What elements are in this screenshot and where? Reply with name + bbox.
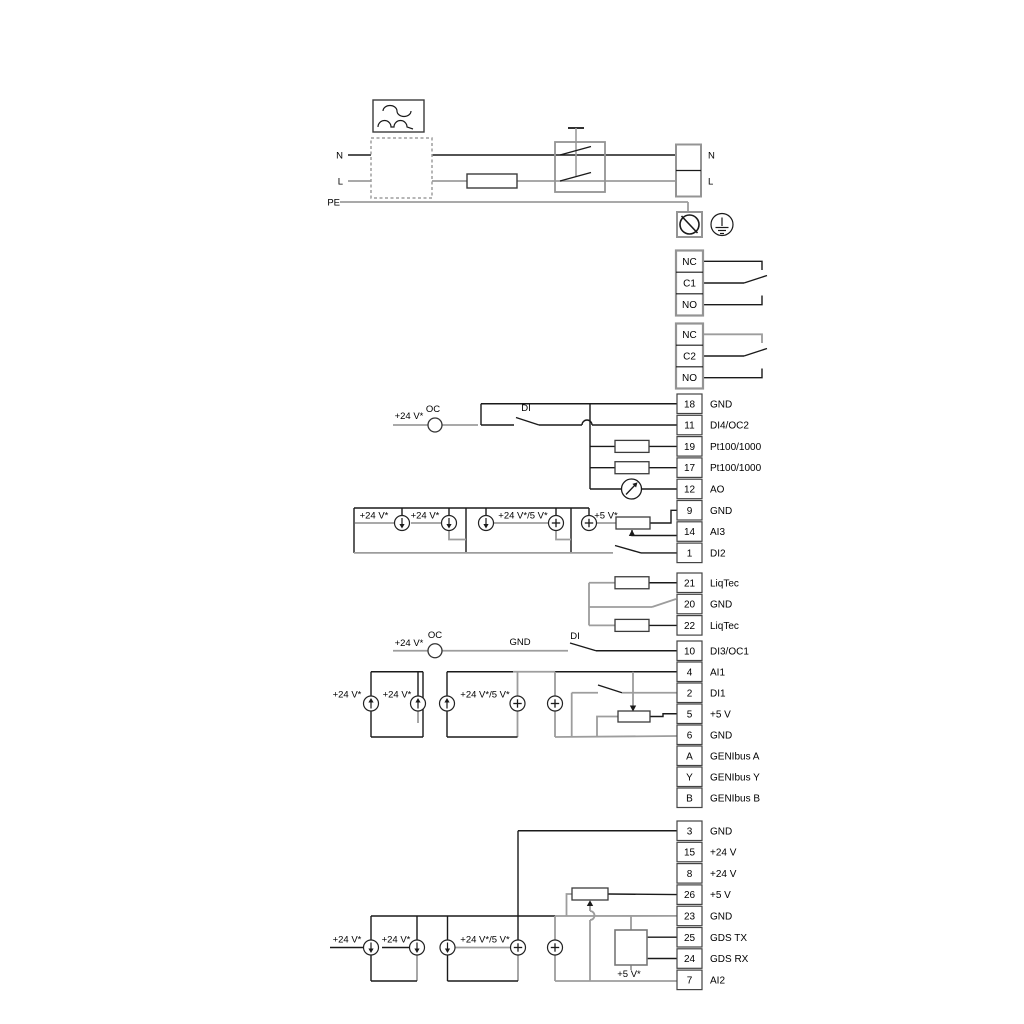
terminal-label: DI2 (710, 548, 726, 559)
diagram-canvas: 18GND11DI4/OC219Pt100/100017Pt100/100012… (0, 0, 1024, 1024)
wire (556, 531, 571, 540)
filter-box (371, 138, 432, 198)
wire (632, 530, 677, 536)
wire (703, 334, 762, 343)
wire-label-sm-gnd: GND (509, 637, 530, 648)
terminal-label: LiqTec (710, 621, 739, 632)
wire (567, 894, 573, 916)
relay-terminal-label: C1 (683, 279, 696, 290)
switch-blade (570, 643, 596, 651)
wire-label-n-right: N (708, 151, 715, 162)
terminal-number: 15 (684, 848, 696, 859)
open-collector-icon (428, 418, 442, 432)
terminal-number: 21 (684, 578, 696, 589)
terminal-label: +5 V (710, 709, 731, 720)
terminal-label: GND (710, 730, 732, 741)
wire-label-s3-c3: +24 V*/5 V* (498, 511, 548, 522)
relay-terminal-label: NO (682, 373, 697, 384)
terminal-number: 6 (687, 730, 693, 741)
mains-supply-icon (373, 100, 424, 132)
terminal-label: GND (710, 911, 732, 922)
terminal-number: 25 (684, 933, 696, 944)
terminal-label: DI3/OC1 (710, 646, 749, 657)
switch-blade (615, 546, 641, 553)
potentiometer (616, 517, 650, 529)
resistor (615, 619, 649, 631)
wire-label-sb-c1: +24 V* (333, 935, 362, 946)
terminal-number: 17 (684, 463, 696, 474)
terminal-label: AI3 (710, 527, 725, 538)
switch-blade (516, 418, 539, 426)
wiper-arrow (587, 900, 593, 906)
wire (703, 261, 762, 270)
terminal-number: 12 (684, 484, 696, 495)
wire (449, 531, 466, 540)
potentiometer (618, 711, 650, 722)
wire (597, 717, 618, 738)
resistor (615, 577, 649, 589)
terminal-label: +24 V (710, 869, 737, 880)
switch-blade (598, 685, 622, 693)
wire-label-pe-left: PE (327, 198, 340, 209)
wire-label-s3-c2: +24 V* (411, 511, 440, 522)
terminal-label: AI1 (710, 667, 725, 678)
terminal-number: 8 (687, 869, 693, 880)
terminal-number: 24 (684, 954, 696, 965)
terminal-label: +5 V (710, 890, 731, 901)
terminal-label: GND (710, 600, 732, 611)
fuse (467, 174, 517, 188)
wire-label-s3-feed-24v: +24 V* (395, 411, 424, 422)
terminal-label: GDS RX (710, 954, 749, 965)
wire-label-sm-oc: OC (428, 630, 442, 641)
terminal-label: GND (710, 506, 732, 517)
terminal-number: 20 (684, 600, 696, 611)
wire (652, 599, 676, 607)
resistor (615, 462, 649, 474)
terminal-number: 7 (687, 975, 693, 986)
resistor (615, 440, 649, 452)
relay-terminal-label: NC (682, 257, 696, 268)
terminal-number: 22 (684, 621, 696, 632)
wire-label-s3-di: DI (521, 403, 531, 414)
switch-blade (744, 276, 767, 284)
wire (703, 296, 762, 305)
terminal-label: +24 V (710, 848, 737, 859)
wire-label-sm-di: DI (570, 631, 580, 642)
terminal-number: 26 (684, 890, 696, 901)
potentiometer (572, 888, 608, 900)
wire-label-sm-feed-24v: +24 V* (395, 638, 424, 649)
wire (555, 736, 677, 737)
wire (703, 369, 762, 378)
terminal-number: Y (686, 772, 693, 783)
terminal-number: 1 (687, 548, 693, 559)
wiring-diagram: 18GND11DI4/OC219Pt100/100017Pt100/100012… (0, 0, 1024, 1024)
terminal-label: Pt100/1000 (710, 442, 762, 453)
relay-terminal-label: NC (682, 330, 696, 341)
wire (650, 510, 677, 523)
open-collector-icon (428, 644, 442, 658)
wire-label-sb-c2: +24 V* (382, 935, 411, 946)
terminal-number: 11 (684, 421, 695, 432)
wire (650, 714, 677, 717)
terminal-label: AO (710, 484, 725, 495)
terminal-number: 10 (684, 646, 696, 657)
terminal-label: GDS TX (710, 933, 747, 944)
terminal-label: DI4/OC2 (710, 421, 749, 432)
terminal-label: AI2 (710, 975, 725, 986)
terminal-number: 3 (687, 826, 693, 837)
terminal-number: 19 (684, 442, 696, 453)
terminal-number: 4 (687, 667, 693, 678)
wire (608, 894, 677, 895)
wire-label-s3-c5: +5 V* (594, 511, 618, 522)
gds-sensor-box (615, 930, 647, 965)
wire-label-n-left: N (336, 151, 343, 162)
wire-label-sb-c3: +24 V*/5 V* (460, 935, 510, 946)
terminal-label: GENIbus A (710, 751, 760, 762)
terminal-number: 2 (687, 688, 693, 699)
terminal-number: 14 (684, 527, 696, 538)
terminal-label: LiqTec (710, 578, 739, 589)
terminal-label: DI1 (710, 688, 726, 699)
wiper-arrow (629, 530, 635, 536)
terminal-label: GENIbus Y (710, 772, 760, 783)
terminal-number: 23 (684, 911, 696, 922)
terminal-number: 18 (684, 399, 696, 410)
terminal-label: Pt100/1000 (710, 463, 762, 474)
wire-label-l-right: L (708, 177, 713, 188)
wire-label-sm-c3: +24 V*/5 V* (460, 690, 510, 701)
relay-terminal-label: C2 (683, 352, 696, 363)
wire-label-sb-5v: +5 V* (617, 969, 641, 980)
wire-label-l-left: L (338, 177, 343, 188)
terminal-label: GENIbus B (710, 793, 760, 804)
terminal-number: 5 (687, 709, 693, 720)
terminal-label: GND (710, 399, 732, 410)
wire-label-sm-c2: +24 V* (383, 690, 412, 701)
terminal-number: 9 (687, 506, 693, 517)
wire-label-s3-oc: OC (426, 404, 440, 415)
terminal-number: A (686, 751, 693, 762)
switch-blade (744, 349, 767, 357)
wire-label-sm-c1: +24 V* (333, 690, 362, 701)
wire-label-s3-c1: +24 V* (360, 511, 389, 522)
relay-terminal-label: NO (682, 300, 697, 311)
terminal-label: GND (710, 826, 732, 837)
terminal-number: B (686, 793, 693, 804)
